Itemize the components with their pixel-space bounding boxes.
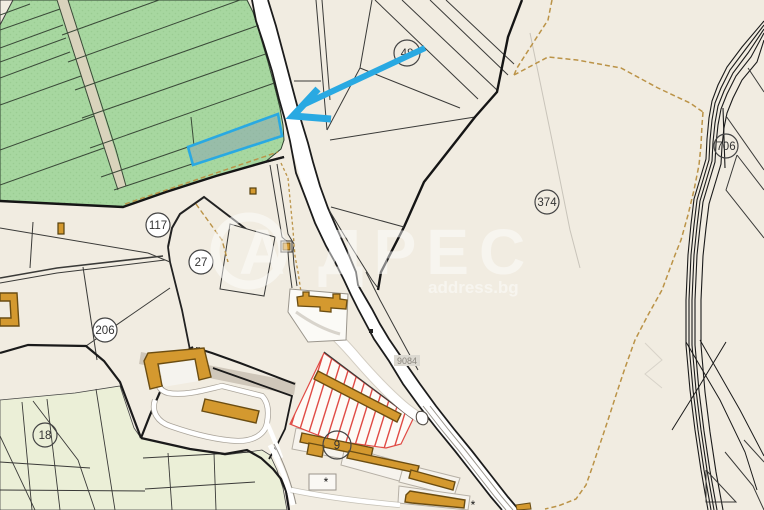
svg-text:27: 27 (195, 257, 208, 269)
svg-text:18: 18 (39, 430, 52, 442)
svg-text:374: 374 (537, 197, 557, 209)
svg-text:*: * (324, 475, 329, 489)
svg-text:address.bg: address.bg (428, 278, 519, 297)
svg-text:206: 206 (95, 325, 114, 337)
svg-text:9084: 9084 (397, 356, 417, 366)
svg-text:9: 9 (334, 440, 340, 452)
svg-text:*: * (471, 498, 476, 510)
svg-text:А: А (239, 216, 285, 288)
svg-text:117: 117 (149, 220, 167, 232)
svg-text:706: 706 (716, 141, 735, 153)
